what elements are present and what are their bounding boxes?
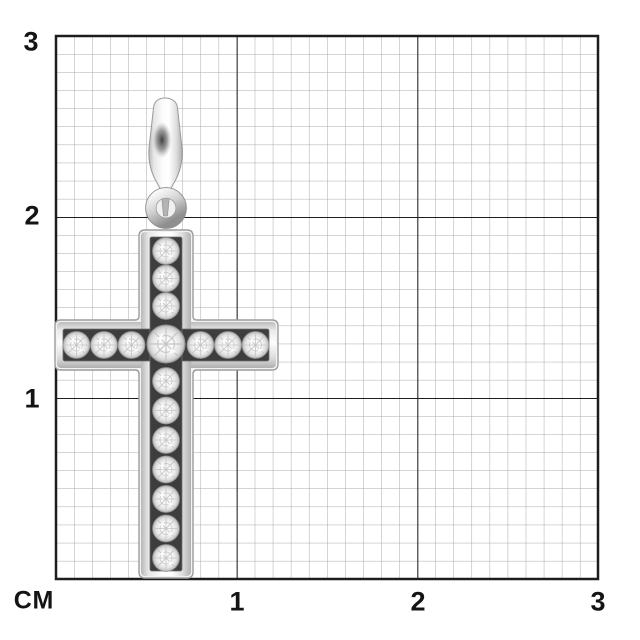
y-axis-tick-2: 2 (24, 203, 39, 230)
x-axis-tick-3: 3 (590, 589, 605, 616)
x-axis-tick-2: 2 (410, 589, 425, 616)
pendant-bail (149, 98, 182, 190)
y-axis-tick-3: 3 (23, 29, 38, 56)
unit-label-cm: СМ (14, 589, 55, 614)
grid-and-pendant-canvas (0, 0, 640, 640)
pendant-jump-ring (146, 188, 187, 229)
cm-grid (56, 36, 598, 579)
size-reference-image: 3 2 1 СМ 1 2 3 (0, 0, 640, 640)
y-axis-tick-1: 1 (24, 386, 39, 413)
x-axis-tick-1: 1 (229, 589, 244, 616)
